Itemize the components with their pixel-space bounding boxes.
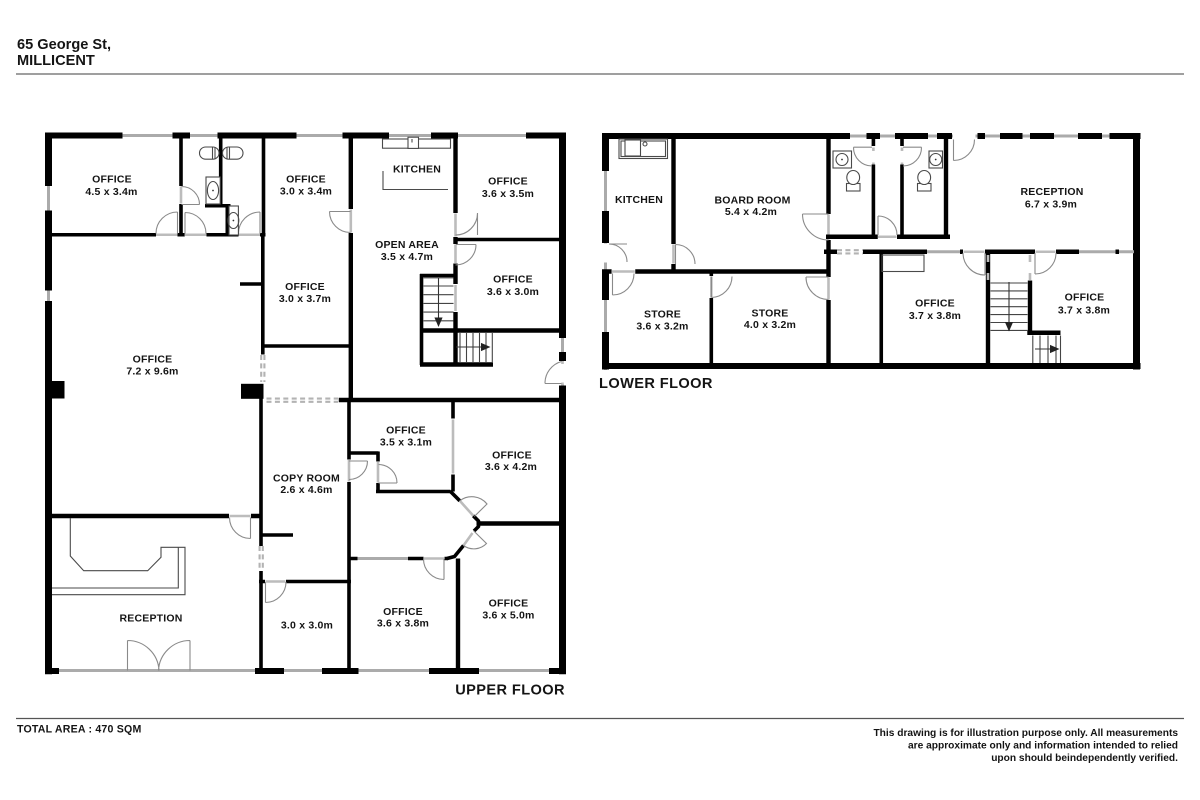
svg-text:STORE: STORE — [752, 308, 789, 320]
svg-text:This drawing is for illustrati: This drawing is for illustration purpose… — [873, 728, 1178, 739]
svg-text:OFFICE: OFFICE — [1065, 292, 1105, 304]
svg-text:OFFICE: OFFICE — [489, 598, 529, 610]
svg-text:OFFICE: OFFICE — [488, 176, 528, 188]
svg-text:3.6 x 5.0m: 3.6 x 5.0m — [482, 610, 534, 622]
svg-text:OFFICE: OFFICE — [92, 174, 132, 186]
svg-text:65 George St,: 65 George St, — [17, 37, 111, 53]
svg-text:3.6 x 3.2m: 3.6 x 3.2m — [636, 321, 688, 333]
svg-text:6.7 x 3.9m: 6.7 x 3.9m — [1025, 199, 1077, 211]
svg-text:3.0 x 3.7m: 3.0 x 3.7m — [279, 293, 331, 305]
svg-text:LOWER FLOOR: LOWER FLOOR — [599, 376, 713, 392]
svg-text:5.4 x 4.2m: 5.4 x 4.2m — [725, 206, 777, 218]
svg-text:upon should beindependently ve: upon should beindependently verified. — [991, 753, 1178, 764]
svg-text:3.7 x 3.8m: 3.7 x 3.8m — [909, 310, 961, 322]
svg-text:RECEPTION: RECEPTION — [1020, 186, 1083, 198]
svg-text:3.6 x 3.8m: 3.6 x 3.8m — [377, 618, 429, 630]
svg-text:KITCHEN: KITCHEN — [615, 194, 663, 206]
svg-text:OFFICE: OFFICE — [915, 298, 955, 310]
svg-text:OFFICE: OFFICE — [285, 281, 325, 293]
svg-text:2.6 x 4.6m: 2.6 x 4.6m — [280, 484, 332, 496]
svg-text:3.7 x 3.8m: 3.7 x 3.8m — [1058, 305, 1110, 317]
svg-text:COPY ROOM: COPY ROOM — [273, 473, 340, 485]
svg-text:OFFICE: OFFICE — [383, 606, 423, 618]
svg-text:OPEN AREA: OPEN AREA — [375, 239, 439, 251]
svg-text:OFFICE: OFFICE — [492, 450, 532, 462]
svg-text:KITCHEN: KITCHEN — [393, 164, 441, 176]
svg-text:3.0 x 3.4m: 3.0 x 3.4m — [280, 186, 332, 198]
svg-text:4.5 x 3.4m: 4.5 x 3.4m — [85, 186, 137, 198]
svg-text:OFFICE: OFFICE — [286, 174, 326, 186]
svg-text:4.0 x 3.2m: 4.0 x 3.2m — [744, 319, 796, 331]
svg-text:OFFICE: OFFICE — [133, 354, 173, 366]
svg-text:MILLICENT: MILLICENT — [17, 53, 95, 69]
svg-text:STORE: STORE — [644, 309, 681, 321]
svg-text:3.6 x 3.5m: 3.6 x 3.5m — [482, 188, 534, 200]
svg-text:TOTAL AREA : 470 SQM: TOTAL AREA : 470 SQM — [17, 724, 141, 736]
svg-text:3.5 x 4.7m: 3.5 x 4.7m — [381, 251, 433, 263]
svg-text:are approximate only and infor: are approximate only and information int… — [908, 741, 1178, 752]
svg-text:OFFICE: OFFICE — [386, 425, 426, 437]
svg-text:3.5 x 3.1m: 3.5 x 3.1m — [380, 437, 432, 449]
svg-text:OFFICE: OFFICE — [493, 274, 533, 286]
svg-text:RECEPTION: RECEPTION — [119, 613, 182, 625]
svg-text:3.0 x 3.0m: 3.0 x 3.0m — [281, 620, 333, 632]
svg-text:3.6 x 3.0m: 3.6 x 3.0m — [487, 286, 539, 298]
svg-text:3.6 x 4.2m: 3.6 x 4.2m — [485, 461, 537, 473]
svg-text:UPPER FLOOR: UPPER FLOOR — [455, 683, 565, 699]
svg-text:7.2 x 9.6m: 7.2 x 9.6m — [126, 366, 178, 378]
svg-text:BOARD ROOM: BOARD ROOM — [714, 195, 790, 207]
